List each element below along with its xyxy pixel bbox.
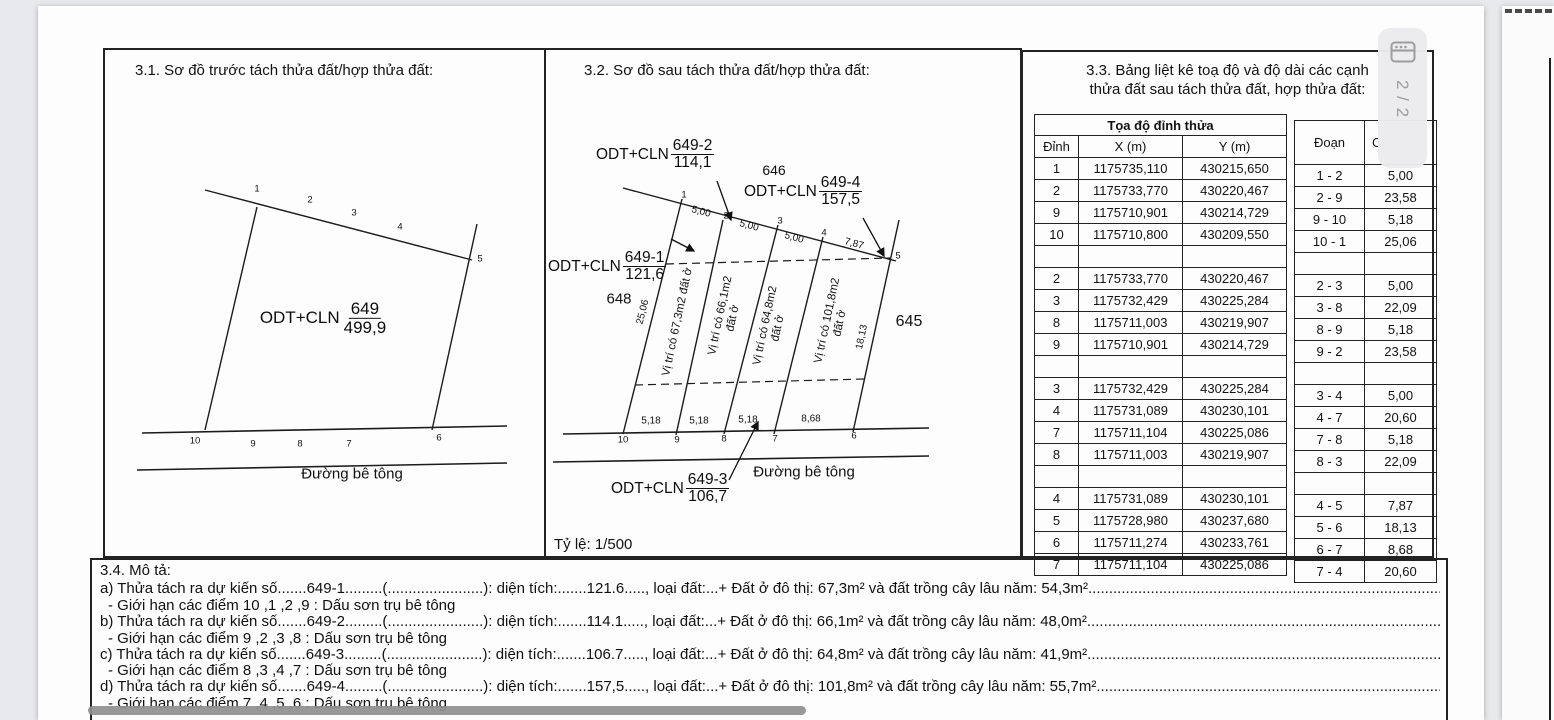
vertex-id [1035,356,1079,378]
segment-length: 5,00 [1365,385,1437,407]
dim-1-2: 5,00 [690,204,712,220]
coord-table-row: 4 1175731,089 430230,101 [1035,400,1287,422]
plot-label-649-2: ODT+CLN 649-2114,1 [596,138,714,171]
segment-id: 8 - 3 [1295,451,1365,473]
point-3: 3 [351,208,356,219]
section-3-1-title: 3.1. Sơ đồ trước tách thửa đất/hợp thửa … [135,62,433,79]
vertex-id [1035,246,1079,268]
coord-table-row: 10 1175710,800 430209,550 [1035,224,1287,246]
segment-length: 7,87 [1365,495,1437,517]
segment-length [1365,253,1437,275]
x-coordinate: 1175711,104 [1079,422,1183,444]
segment-table-row [1295,253,1437,275]
vertex-id: 3 [1035,290,1079,312]
point-6: 6 [436,433,441,444]
y-coordinate: 430209,550 [1183,224,1287,246]
subplot-1-area-note: Vị trí có 67,3m2 đất ở [660,267,696,378]
segment-table-row [1295,363,1437,385]
col-header-vertex: Đỉnh [1035,136,1079,158]
x-coordinate [1079,466,1183,488]
segment-id: 10 - 1 [1295,231,1365,253]
x-coordinate: 1175711,003 [1079,444,1183,466]
dim-9-8: 5,18 [689,416,708,427]
y-coordinate: 430214,729 [1183,202,1287,224]
dim-right-5-6: 18,13 [854,324,870,351]
vertex-id [1035,466,1079,488]
neighbor-parcel-648: 648 [606,291,631,308]
segment-table-row: 3 - 4 5,00 [1295,385,1437,407]
segment-id [1295,363,1365,385]
segment-table-row: 4 - 5 7,87 [1295,495,1437,517]
segment-length [1365,363,1437,385]
description-line-b: b) Thửa tách ra dự kiến số.......649-2..… [100,613,1440,630]
col-header-segment: Đoạn [1295,121,1365,165]
y-coordinate: 430225,284 [1183,378,1287,400]
coord-table-row: 5 1175728,980 430237,680 [1035,510,1287,532]
y-coordinate [1183,246,1287,268]
coord-table-row: 3 1175732,429 430225,284 [1035,378,1287,400]
y-coordinate: 430220,467 [1183,180,1287,202]
segment-id: 7 - 8 [1295,429,1365,451]
x-coordinate: 1175710,901 [1079,334,1183,356]
segment-table-row: 2 - 9 23,58 [1295,187,1437,209]
section-3-4-title: 3.4. Mô tả: [100,562,171,579]
vertex-id: 8 [1035,312,1079,334]
segment-id: 1 - 2 [1295,165,1365,187]
x-coordinate: 1175733,770 [1079,268,1183,290]
coord-table-row: 6 1175711,274 430233,761 [1035,532,1287,554]
segment-id: 3 - 4 [1295,385,1365,407]
segment-table-row: 9 - 10 5,18 [1295,209,1437,231]
coord-table-row: 2 1175733,770 430220,467 [1035,180,1287,202]
point-10: 10 [618,435,629,446]
point-1: 1 [681,190,686,201]
y-coordinate: 430225,086 [1183,422,1287,444]
segment-id: 4 - 7 [1295,407,1365,429]
subplot-3-area-note: Vị trí có 64,8m2 đất ở [751,285,793,369]
vertex-id: 2 [1035,268,1079,290]
description-sub-c: - Giới hạn các điểm 8 ,3 ,4 ,7 : Dấu sơn… [108,662,447,679]
segment-id: 2 - 3 [1295,275,1365,297]
vertex-id: 3 [1035,378,1079,400]
segment-length [1365,473,1437,495]
plot-label-649-4: ODT+CLN 649-4157,5 [744,175,862,208]
scale-note: Tỷ lệ: 1/500 [554,536,632,553]
vertex-id: 9 [1035,202,1079,224]
col-header-x: X (m) [1079,136,1183,158]
x-coordinate [1079,246,1183,268]
point-2: 2 [307,195,312,206]
dim-left-10-1: 25,06 [635,299,652,326]
vertex-id: 4 [1035,400,1079,422]
x-coordinate: 1175732,429 [1079,378,1183,400]
x-coordinate: 1175732,429 [1079,290,1183,312]
page-indicator: 2 / 2 [1378,28,1427,168]
segment-table-row: 9 - 2 23,58 [1295,341,1437,363]
segment-id [1295,473,1365,495]
plot-label-649-1: ODT+CLN 649-1121,6 [548,250,666,283]
segment-length-table: Đoạn C 1 - 2 5,00 2 - 9 23,58 9 - 10 5,1… [1294,120,1437,583]
vertex-id: 8 [1035,444,1079,466]
vertex-id: 1 [1035,158,1079,180]
segment-id: 5 - 6 [1295,517,1365,539]
x-coordinate: 1175731,089 [1079,488,1183,510]
point-2: 2 [723,211,728,222]
segment-id: 9 - 2 [1295,341,1365,363]
segment-length: 5,18 [1365,429,1437,451]
description-line-d: d) Thửa tách ra dự kiến số.......649-4..… [100,678,1440,695]
vertex-id: 6 [1035,532,1079,554]
x-coordinate [1079,356,1183,378]
road-label: Đường bê tông [301,466,403,483]
next-page-table-border [1549,58,1552,720]
segment-table-row: 8 - 3 22,09 [1295,451,1437,473]
segment-length: 22,09 [1365,297,1437,319]
vertex-id: 7 [1035,422,1079,444]
x-coordinate: 1175735,110 [1079,158,1183,180]
coord-table-row: 4 1175731,089 430230,101 [1035,488,1287,510]
dim-10-9: 5,18 [641,416,660,427]
x-coordinate: 1175728,980 [1079,510,1183,532]
point-8: 8 [721,434,726,445]
description-sub-a: - Giới hạn các điểm 10 ,1 ,2 ,9 : Dấu sơ… [108,597,455,614]
dim-8-7: 5,18 [738,415,757,426]
y-coordinate: 430219,907 [1183,312,1287,334]
coord-table-row: 7 1175711,104 430225,086 [1035,422,1287,444]
coord-table-row: 9 1175710,901 430214,729 [1035,202,1287,224]
next-page-scan-marks [1505,9,1552,13]
segment-length: 23,58 [1365,187,1437,209]
coord-table-row: 2 1175733,770 430220,467 [1035,268,1287,290]
segment-length: 25,06 [1365,231,1437,253]
plot-label-649: ODT+CLN 649 499,9 [260,300,388,336]
segment-length: 5,00 [1365,275,1437,297]
vertex-id: 10 [1035,224,1079,246]
point-6: 6 [851,431,856,442]
point-7: 7 [346,439,351,450]
segment-id [1295,253,1365,275]
y-coordinate: 430219,907 [1183,444,1287,466]
plot-label-649-3: ODT+CLN 649-3106,7 [611,472,729,505]
description-line-a: a) Thửa tách ra dự kiến số.......649-1..… [100,580,1440,597]
document-viewer: { "viewer": { "page_indicator": "2 / 2" … [0,0,1554,720]
y-coordinate: 430230,101 [1183,400,1287,422]
point-9: 9 [250,439,255,450]
segment-length: 22,09 [1365,451,1437,473]
section-3-1-before-split-diagram: 3.1. Sơ đồ trước tách thửa đất/hợp thửa … [103,48,545,558]
segment-id: 2 - 9 [1295,187,1365,209]
coord-table-row: 1 1175735,110 430215,650 [1035,158,1287,180]
coord-table-row [1035,466,1287,488]
segment-table-row: 4 - 7 20,60 [1295,407,1437,429]
vertex-id: 9 [1035,334,1079,356]
section-3-3-title-line1: 3.3. Bảng liệt kê toạ độ và độ dài các c… [1023,62,1432,79]
y-coordinate [1183,466,1287,488]
segment-id: 8 - 9 [1295,319,1365,341]
segment-id: 9 - 10 [1295,209,1365,231]
coord-table-row: 8 1175711,003 430219,907 [1035,444,1287,466]
x-coordinate: 1175711,274 [1079,532,1183,554]
road-label: Đường bê tông [753,464,855,481]
point-10: 10 [190,436,201,447]
x-coordinate: 1175710,901 [1079,202,1183,224]
segment-id: 4 - 5 [1295,495,1365,517]
subplot-4-area-note: Vị trí có 101,8m2 đất ở [812,277,855,367]
coordinate-table: Tọa độ đỉnh thửa Đỉnh X (m) Y (m) 1 1175… [1034,114,1287,576]
x-coordinate: 1175711,003 [1079,312,1183,334]
land-use-code: ODT+CLN [260,308,340,328]
col-header-y: Y (m) [1183,136,1287,158]
segment-table-row: 7 - 8 5,18 [1295,429,1437,451]
description-sub-b: - Giới hạn các điểm 9 ,2 ,3 ,8 : Dấu sơn… [108,630,447,647]
dim-7-6: 8,68 [801,414,820,425]
segment-table-row: 3 - 8 22,09 [1295,297,1437,319]
y-coordinate: 430233,761 [1183,532,1287,554]
segment-length: 20,60 [1365,407,1437,429]
page-icon [1390,41,1416,63]
coord-table-row: 8 1175711,003 430219,907 [1035,312,1287,334]
point-4: 4 [821,228,826,239]
y-coordinate: 430225,284 [1183,290,1287,312]
description-line-c: c) Thửa tách ra dự kiến số.......649-3..… [100,646,1440,663]
y-coordinate: 430220,467 [1183,268,1287,290]
page-indicator-text: 2 / 2 [1393,80,1413,118]
neighbor-parcel-645: 645 [896,313,923,331]
section-3-2-after-split-diagram: 3.2. Sơ đồ sau tách thửa đất/hợp thửa đấ… [545,48,1022,558]
plot-fraction: 649 499,9 [342,300,389,336]
point-4: 4 [397,222,402,233]
coord-table-row: 9 1175710,901 430214,729 [1035,334,1287,356]
segment-length: 18,13 [1365,517,1437,539]
point-3: 3 [777,216,782,227]
section-3-3-coordinates: 3.3. Bảng liệt kê toạ độ và độ dài các c… [1021,50,1434,558]
y-coordinate: 430214,729 [1183,334,1287,356]
segment-table-row: 2 - 3 5,00 [1295,275,1437,297]
point-7: 7 [772,434,777,445]
point-5: 5 [895,251,900,262]
vertex-id: 2 [1035,180,1079,202]
horizontal-scrollbar-thumb[interactable] [88,706,806,715]
x-coordinate: 1175710,800 [1079,224,1183,246]
y-coordinate: 430215,650 [1183,158,1287,180]
dim-2-3: 5,00 [738,218,760,234]
dim-3-4: 5,00 [783,230,805,246]
coord-table-row [1035,246,1287,268]
vertex-id: 5 [1035,510,1079,532]
coord-table-row: 3 1175732,429 430225,284 [1035,290,1287,312]
point-8: 8 [297,439,302,450]
dim-4-5: 7,87 [843,236,865,252]
segment-length: 5,18 [1365,319,1437,341]
coord-table-group-header: Tọa độ đỉnh thửa [1035,115,1287,136]
x-coordinate: 1175733,770 [1079,180,1183,202]
subplot-2-area-note: Vị trí có 66,1m2 đất ở [706,275,748,359]
coord-table-row [1035,356,1287,378]
y-coordinate: 430237,680 [1183,510,1287,532]
point-1: 1 [254,184,259,195]
vertex-id: 4 [1035,488,1079,510]
next-page-edge [1502,6,1554,720]
segment-length: 5,18 [1365,209,1437,231]
segment-id: 3 - 8 [1295,297,1365,319]
y-coordinate: 430230,101 [1183,488,1287,510]
point-9: 9 [674,435,679,446]
segment-table-row [1295,473,1437,495]
point-5: 5 [477,254,482,265]
y-coordinate [1183,356,1287,378]
section-3-3-title-line2: thửa đất sau tách thửa đất, hợp thửa đất… [1023,81,1432,98]
x-coordinate: 1175731,089 [1079,400,1183,422]
segment-table-row: 10 - 1 25,06 [1295,231,1437,253]
segment-length: 23,58 [1365,341,1437,363]
section-3-2-title: 3.2. Sơ đồ sau tách thửa đất/hợp thửa đấ… [584,62,870,79]
segment-table-row: 8 - 9 5,18 [1295,319,1437,341]
segment-table-row: 5 - 6 18,13 [1295,517,1437,539]
